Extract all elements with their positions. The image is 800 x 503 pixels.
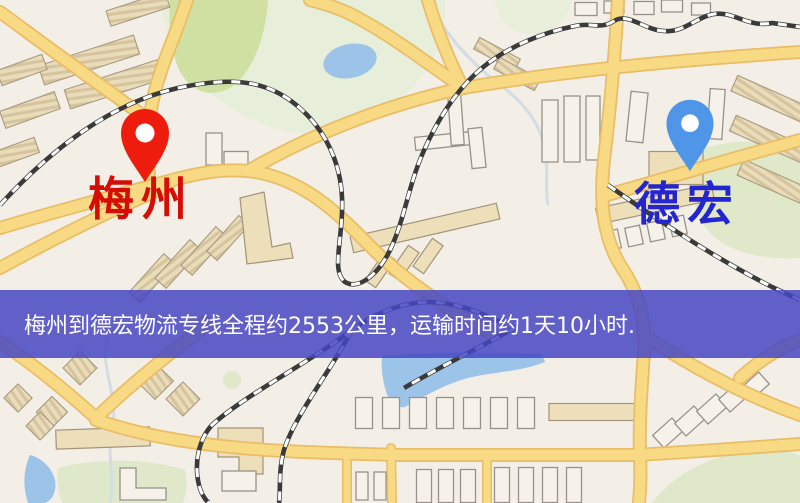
map-image: 梅州 德宏 梅州到德宏物流专线全程约2553公里，运输时间约1天10小时.	[0, 0, 800, 503]
map-canvas	[0, 0, 800, 503]
route-info-text: 梅州到德宏物流专线全程约2553公里，运输时间约1天10小时.	[0, 308, 635, 340]
destination-label: 德宏	[634, 181, 740, 227]
origin-label: 梅州	[88, 176, 194, 222]
route-info-banner: 梅州到德宏物流专线全程约2553公里，运输时间约1天10小时.	[0, 290, 800, 358]
